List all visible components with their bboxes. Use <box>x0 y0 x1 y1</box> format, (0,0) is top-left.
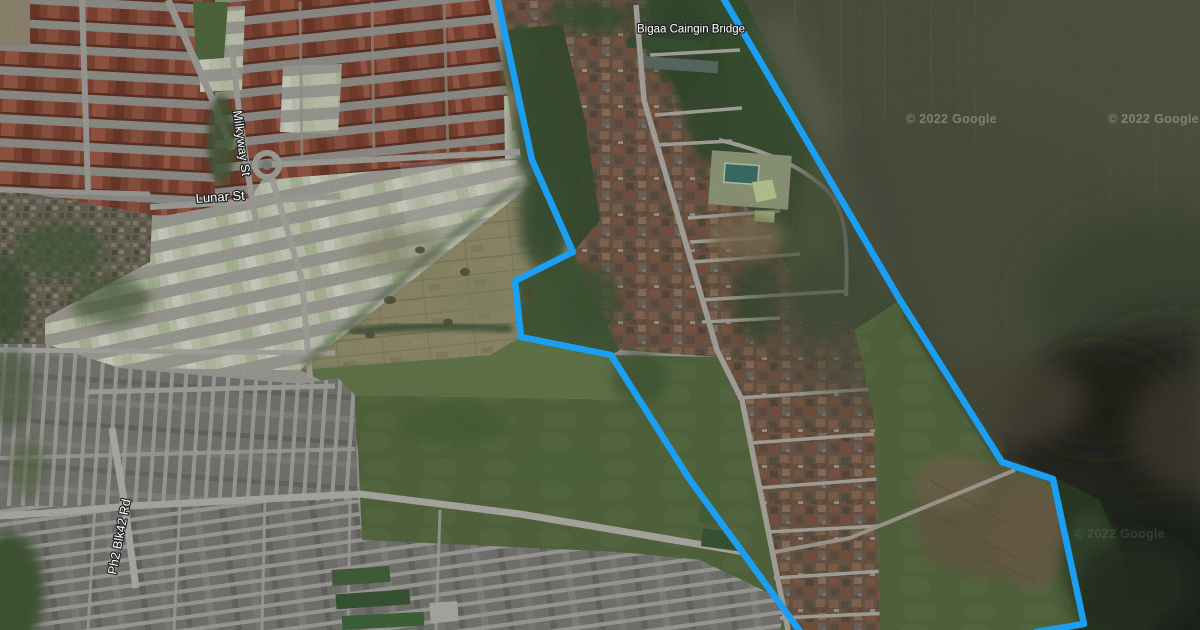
svg-text:© 2022 Google: © 2022 Google <box>1074 527 1165 541</box>
svg-text:© 2022 Google: © 2022 Google <box>906 112 997 126</box>
svg-text:Bigaa Caingin Bridge: Bigaa Caingin Bridge <box>637 24 745 36</box>
svg-text:© 2022 Google: © 2022 Google <box>1108 112 1199 126</box>
